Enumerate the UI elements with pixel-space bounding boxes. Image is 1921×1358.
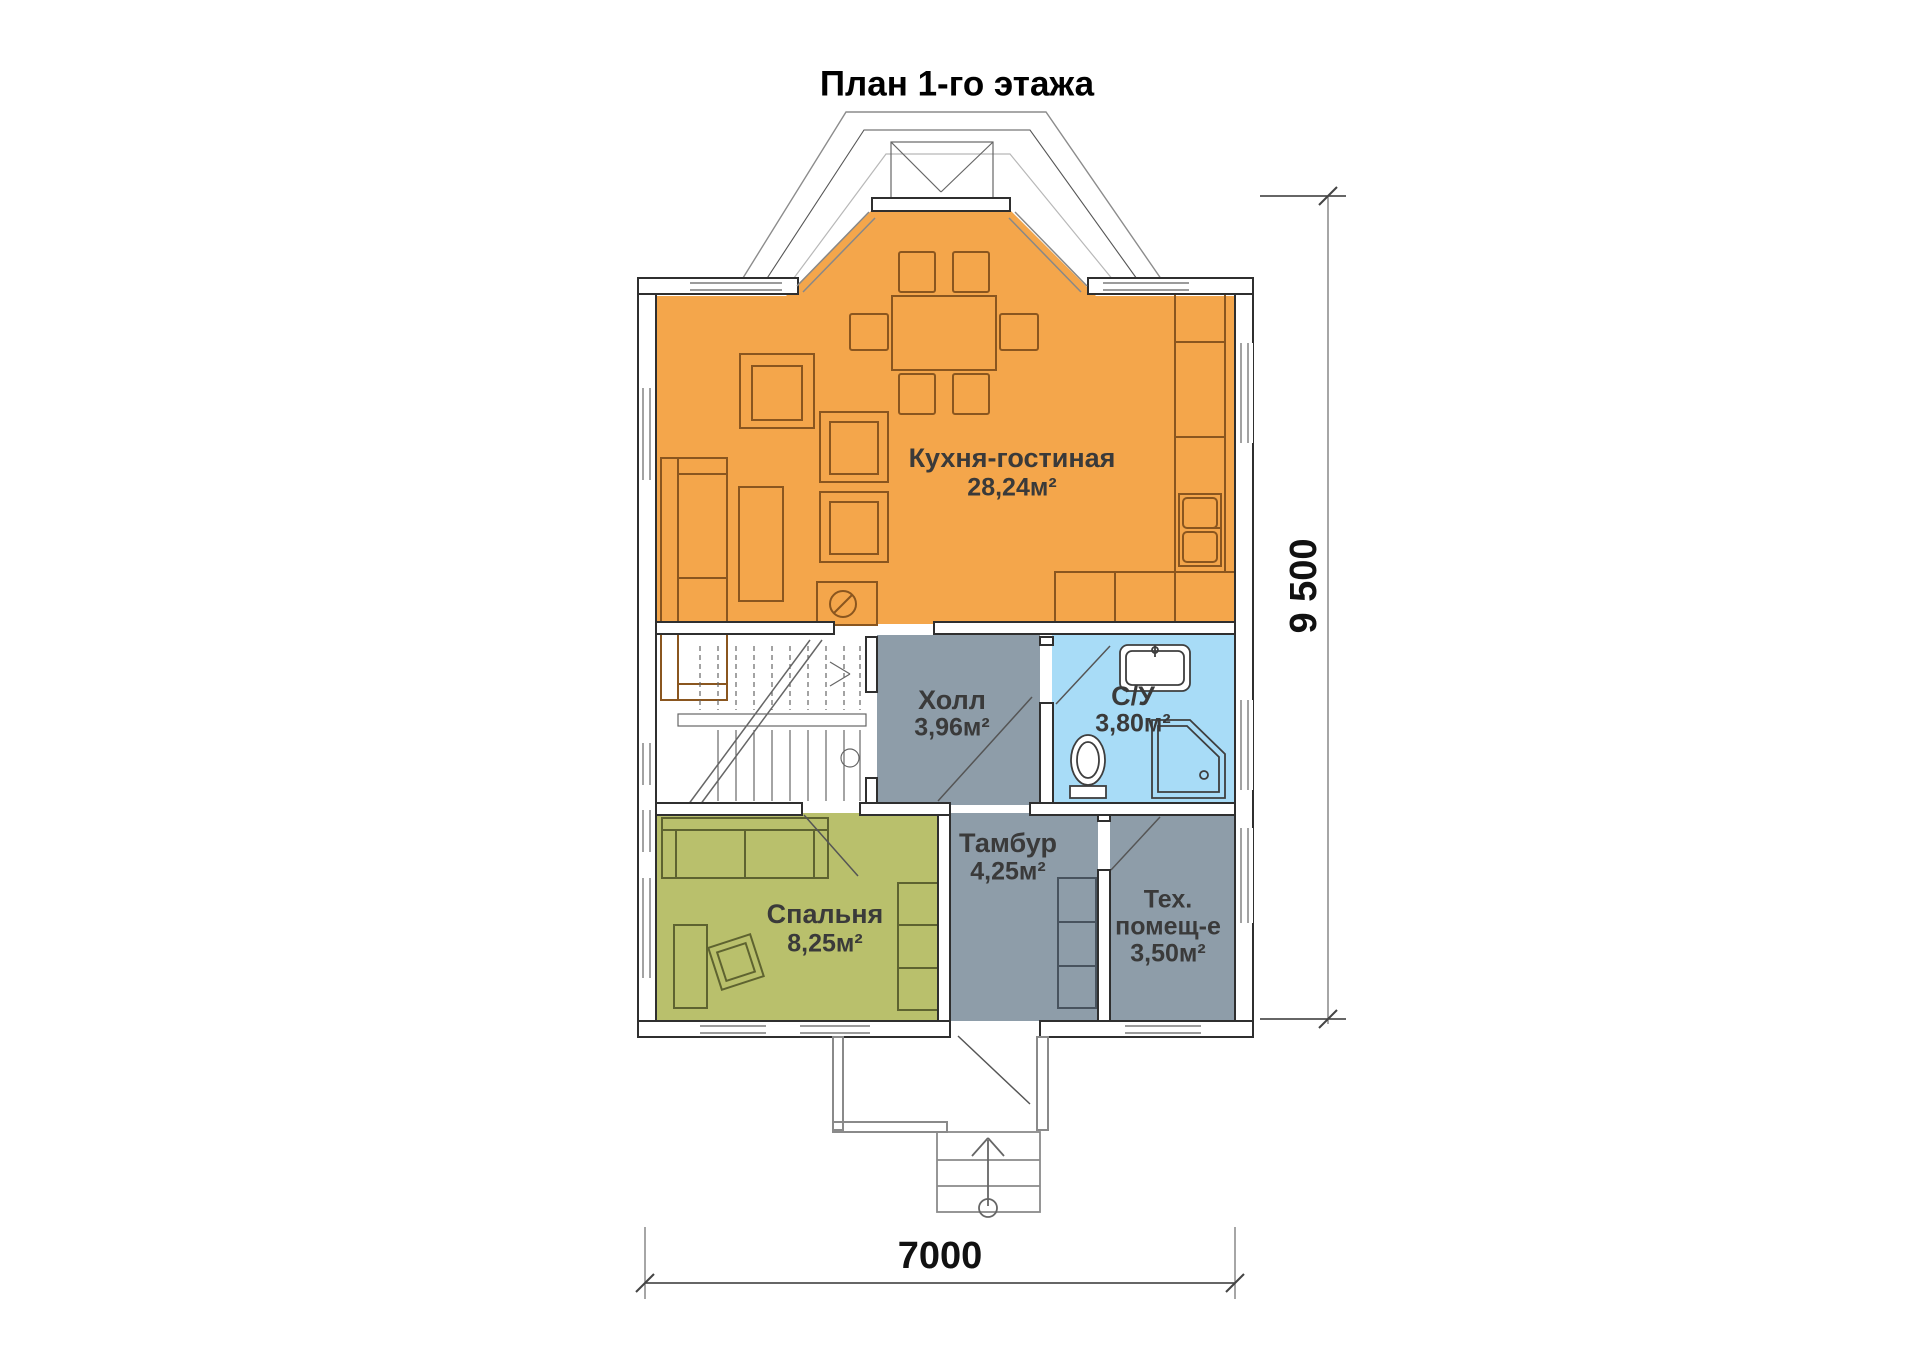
label-tech-room-name-line2: помещ-е xyxy=(1115,913,1221,941)
wall-bottom-left xyxy=(638,1021,950,1037)
window xyxy=(1125,1022,1201,1036)
label-bedroom-area: 8,25м² xyxy=(787,930,862,958)
window xyxy=(800,1022,870,1036)
stair-handrail xyxy=(678,714,866,726)
wall-mid-1 xyxy=(656,803,802,815)
wall-bay-top xyxy=(872,198,1010,211)
window xyxy=(639,743,655,785)
staircase xyxy=(678,640,866,805)
wall-hall-bath-2 xyxy=(1040,703,1053,803)
dimension-width-label: 7000 xyxy=(898,1235,983,1277)
window xyxy=(639,810,655,852)
window xyxy=(639,388,655,480)
wall-stairs-hall-2 xyxy=(866,778,877,803)
stair-direction-arrow xyxy=(830,662,850,686)
label-hall-name: Холл xyxy=(918,685,986,715)
label-tech-room-name-line1: Тех. xyxy=(1144,886,1192,914)
window xyxy=(690,279,782,293)
entrance-steps xyxy=(937,1132,1040,1217)
label-bathroom-area: 3,80м² xyxy=(1095,710,1170,738)
wall-hall-bath-1 xyxy=(1040,637,1053,645)
wall-stairs-hall-1 xyxy=(866,637,877,692)
floor-plan-canvas: План 1-го этажа xyxy=(0,0,1921,1358)
room-kitchen-living xyxy=(656,210,1235,624)
window xyxy=(700,1022,766,1036)
window xyxy=(1103,279,1189,293)
wall-vestibule-tech-1 xyxy=(1098,815,1110,821)
floor-plan-page: План 1-го этажа xyxy=(0,0,1921,1358)
window xyxy=(1237,700,1253,790)
steps-up-arrow xyxy=(972,1138,1004,1217)
dimension-height-label: 9 500 xyxy=(1283,538,1325,633)
dimension-vertical: 9 500 xyxy=(1260,187,1346,1028)
label-hall-area: 3,96м² xyxy=(914,714,989,742)
label-bathroom-name: С/У xyxy=(1111,681,1156,711)
wall-vestibule-tech-2 xyxy=(1098,870,1110,1021)
wall-mid-3 xyxy=(1030,803,1235,815)
window xyxy=(1237,828,1253,923)
window xyxy=(639,878,655,978)
page-title: План 1-го этажа xyxy=(820,64,1095,103)
window xyxy=(1237,343,1253,443)
label-kitchen-living-name: Кухня-гостиная xyxy=(909,443,1116,473)
wall-mid-2 xyxy=(860,803,950,815)
label-vestibule-area: 4,25м² xyxy=(970,858,1045,886)
toilet xyxy=(1070,735,1106,798)
wall-bedroom-vestibule xyxy=(938,815,950,1021)
label-vestibule-name: Тамбур xyxy=(959,828,1057,858)
label-tech-room-area: 3,50м² xyxy=(1130,940,1205,968)
dimension-horizontal: 7000 xyxy=(636,1227,1244,1299)
door-entrance xyxy=(958,1036,1030,1104)
wall-kitchen-1 xyxy=(656,622,834,634)
stair-lower-flight xyxy=(718,730,860,801)
label-kitchen-living-area: 28,24м² xyxy=(967,474,1056,502)
label-bedroom-name: Спальня xyxy=(767,899,884,929)
entrance-porch xyxy=(833,1037,1048,1132)
wall-kitchen-2 xyxy=(934,622,1235,634)
